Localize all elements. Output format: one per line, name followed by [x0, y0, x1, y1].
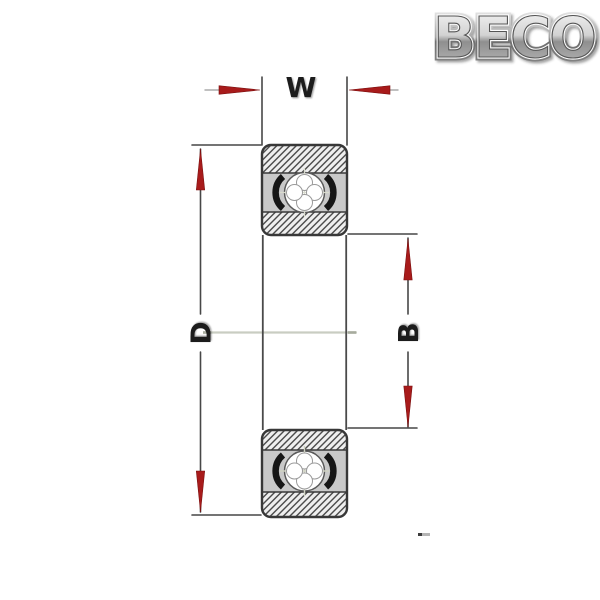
bearing-bottom-section: [262, 430, 347, 517]
dim-b-arrowhead-up: [404, 239, 412, 280]
dim-label-d: D: [185, 321, 218, 344]
dimension-w: W: [205, 71, 398, 145]
dim-b-arrowhead-down: [404, 386, 412, 427]
dim-d-arrowhead-down: [196, 471, 204, 512]
bearing-diagram-page: W D B BECO BECO BECO: [0, 0, 600, 600]
dimension-d: D: [185, 145, 262, 515]
dim-w-arrowhead-right: [349, 86, 390, 95]
stray-mark: [418, 533, 430, 536]
dim-d-arrowhead-up: [196, 149, 204, 190]
dim-w-arrowhead-left: [219, 86, 260, 95]
beco-logo-face: BECO: [433, 6, 595, 71]
bearing-diagram: W D B BECO BECO BECO: [0, 0, 600, 600]
dim-label-b: B: [392, 322, 425, 343]
beco-logo: BECO BECO BECO: [433, 6, 595, 71]
bearing-top-section: [262, 145, 347, 235]
dimension-b: B: [348, 234, 425, 428]
dim-label-w: W: [286, 71, 317, 104]
